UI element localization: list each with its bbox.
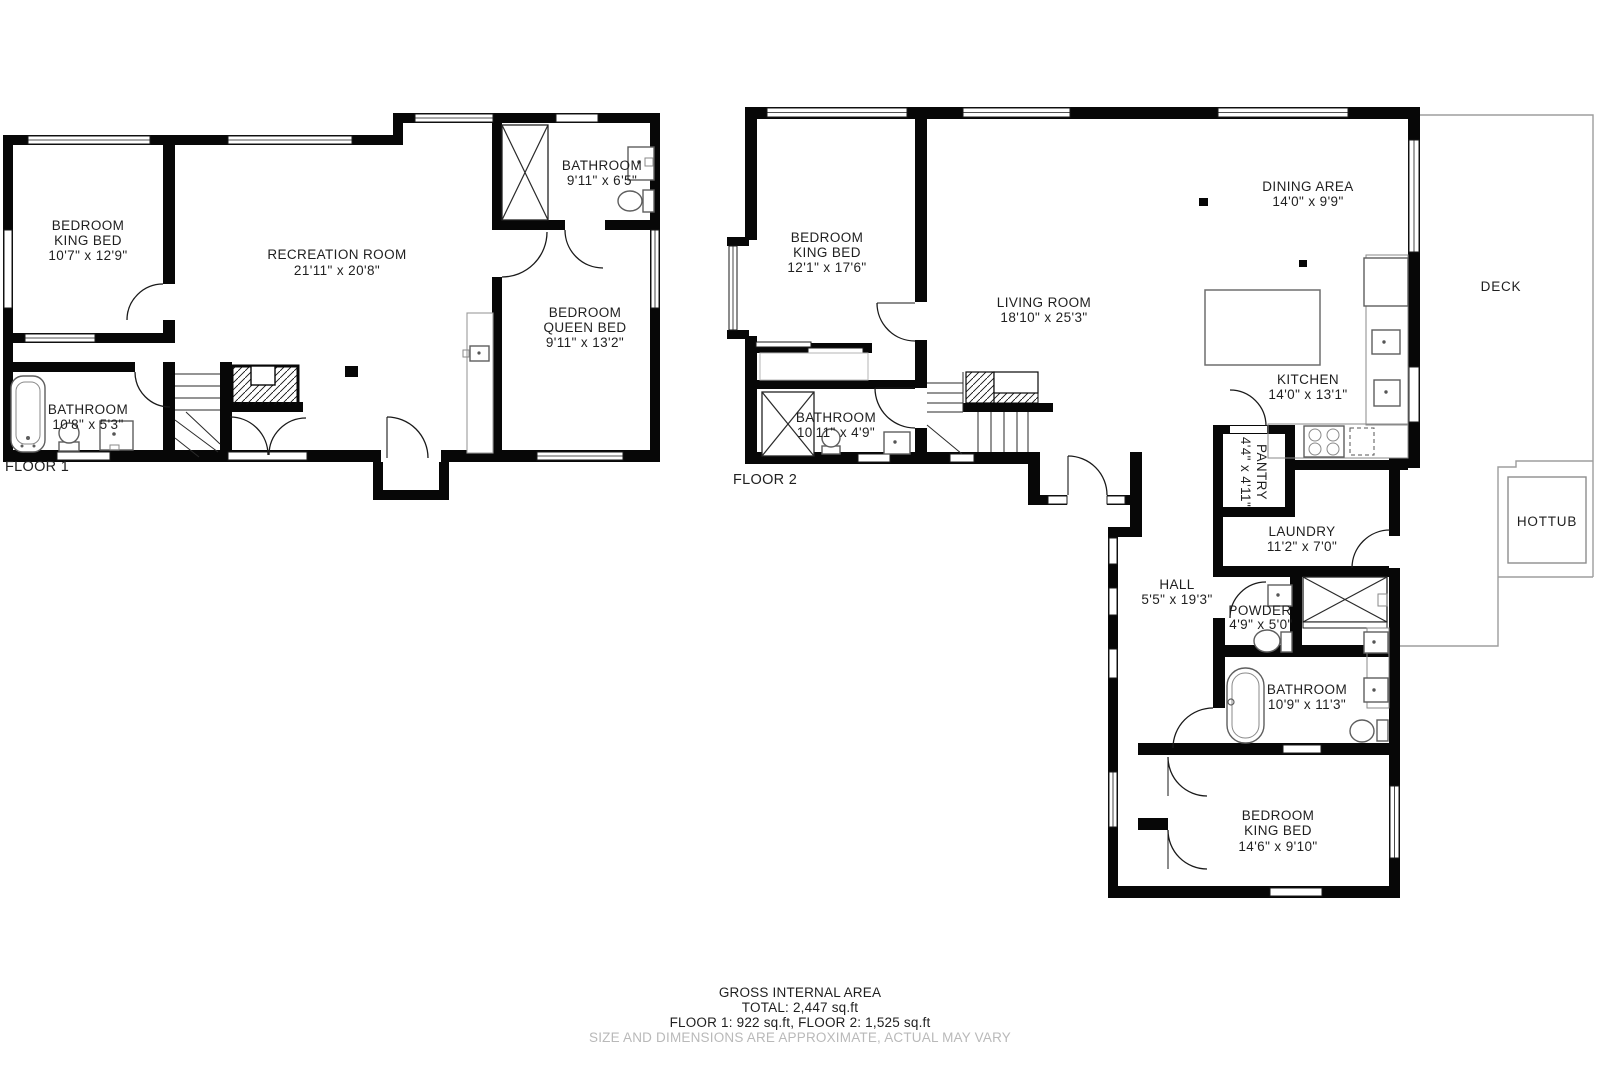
hottub-label: HOTTUB	[1517, 514, 1577, 529]
room-dims-bedroom-queen: 9'11" x 13'2"	[546, 335, 624, 350]
fridge	[1364, 258, 1408, 306]
laundry-closet	[1303, 577, 1387, 628]
column-post	[345, 366, 358, 377]
room-label-pantry: PANTRY	[1254, 444, 1269, 500]
room-label-dining: DINING AREA	[1262, 179, 1353, 194]
room-label-recreation: RECREATION ROOM	[267, 247, 406, 262]
room-label-bedroom-king-2: KING BED	[793, 245, 861, 260]
deck: DECK HOTTUB	[1400, 115, 1593, 646]
room-dims-kitchen: 14'0" x 13'1"	[1268, 387, 1347, 402]
bathtub	[11, 376, 45, 452]
fireplace	[232, 366, 298, 406]
room-dims-bedroom-bottom: 14'6" x 9'10"	[1238, 839, 1317, 854]
toilet	[618, 190, 654, 212]
room-label-bathroom-upper: BATHROOM	[562, 158, 642, 173]
footer-floor-areas: FLOOR 1: 922 sq.ft, FLOOR 2: 1,525 sq.ft	[670, 1015, 931, 1030]
footer: GROSS INTERNAL AREA TOTAL: 2,447 sq.ft F…	[589, 985, 1011, 1045]
room-label-laundry: LAUNDRY	[1268, 524, 1335, 539]
room-dims-bathroom-upper: 9'11" x 6'5"	[567, 173, 637, 188]
room-dims-living: 18'10" x 25'3"	[1000, 310, 1087, 325]
room-dims-recreation: 21'11" x 20'8"	[294, 263, 380, 278]
room-label-bedroom-queen: QUEEN BED	[543, 320, 626, 335]
room-dims-powder: 4'9" x 5'0"	[1229, 617, 1292, 632]
room-dims-bedroom-king-2: 12'1" x 17'6"	[787, 260, 866, 275]
room-label-kitchen: KITCHEN	[1277, 372, 1339, 387]
room-dims-hall: 5'5" x 19'3"	[1141, 592, 1212, 607]
floor1-closet	[502, 125, 548, 220]
dishwasher	[1350, 428, 1374, 455]
floor2-title: FLOOR 2	[733, 472, 797, 488]
footer-gross-area: GROSS INTERNAL AREA	[719, 985, 881, 1000]
floor-marker	[1299, 260, 1307, 267]
footer-total: TOTAL: 2,447 sq.ft	[742, 1000, 858, 1015]
floorplan-drawing: BEDROOM KING BED 10'7" x 12'9" RECREATIO…	[0, 0, 1599, 1066]
floor2-stairs	[927, 372, 1038, 454]
room-label-bathroom-main: BATHROOM	[1267, 682, 1347, 697]
floor2-plan: BEDROOM KING BED 12'1" x 17'6" LIVING RO…	[727, 107, 1420, 898]
room-dims-bathroom-lower: 10'8" x 5'3"	[52, 417, 123, 432]
room-label-powder: POWDER	[1228, 603, 1291, 618]
room-label-bedroom-king: KING BED	[54, 233, 122, 248]
deck-label: DECK	[1481, 279, 1522, 294]
room-label-bedroom-queen: BEDROOM	[549, 305, 622, 320]
room-label-bedroom-king-2: BEDROOM	[791, 230, 864, 245]
floor1-plan: BEDROOM KING BED 10'7" x 12'9" RECREATIO…	[3, 113, 660, 500]
room-label-bathroom-small: BATHROOM	[796, 410, 876, 425]
floor-marker	[1199, 198, 1208, 206]
room-dims-pantry: 4'4" x 4'11"	[1238, 437, 1253, 507]
room-label-living: LIVING ROOM	[997, 295, 1091, 310]
bar-counter	[463, 313, 493, 453]
room-label-hall: HALL	[1159, 577, 1194, 592]
room-label-bedroom-king: BEDROOM	[52, 218, 125, 233]
floorplan-page: BEDROOM KING BED 10'7" x 12'9" RECREATIO…	[0, 0, 1599, 1066]
room-dims-bedroom-king: 10'7" x 12'9"	[48, 248, 127, 263]
floor1-title: FLOOR 1	[5, 459, 69, 475]
room-dims-bathroom-main: 10'9" x 11'3"	[1268, 697, 1346, 712]
footer-disclaimer: SIZE AND DIMENSIONS ARE APPROXIMATE, ACT…	[589, 1030, 1011, 1045]
room-dims-dining: 14'0" x 9'9"	[1272, 194, 1343, 209]
room-label-bathroom-lower: BATHROOM	[48, 402, 128, 417]
room-label-bedroom-bottom: KING BED	[1244, 823, 1312, 838]
floor2-bath-small	[760, 353, 910, 456]
room-label-bedroom-bottom: BEDROOM	[1242, 808, 1315, 823]
kitchen-island	[1205, 290, 1320, 365]
floor1-stairs	[175, 374, 220, 457]
room-dims-laundry: 11'2" x 7'0"	[1267, 539, 1337, 554]
room-dims-bathroom-small: 10'11" x 4'9"	[797, 425, 875, 440]
